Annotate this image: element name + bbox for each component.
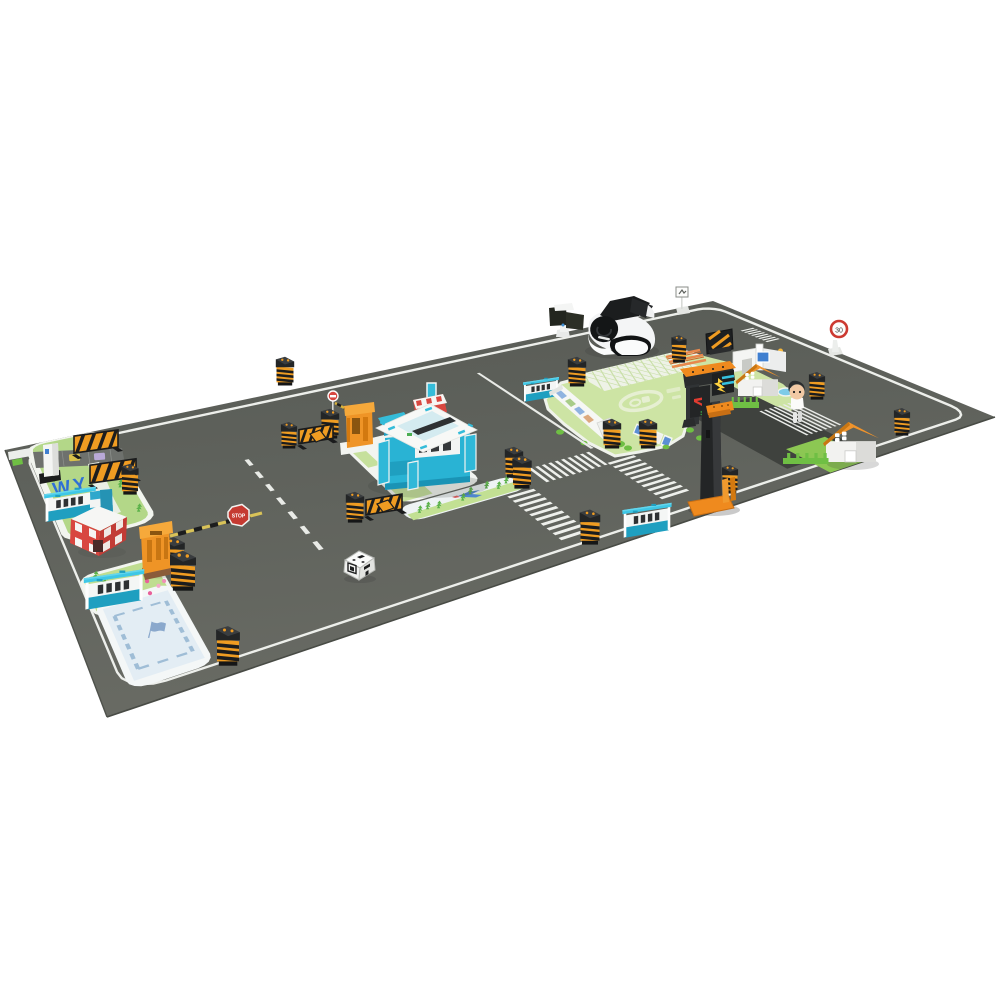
svg-text:STOP: STOP xyxy=(232,514,246,520)
svg-text:30: 30 xyxy=(835,328,843,335)
